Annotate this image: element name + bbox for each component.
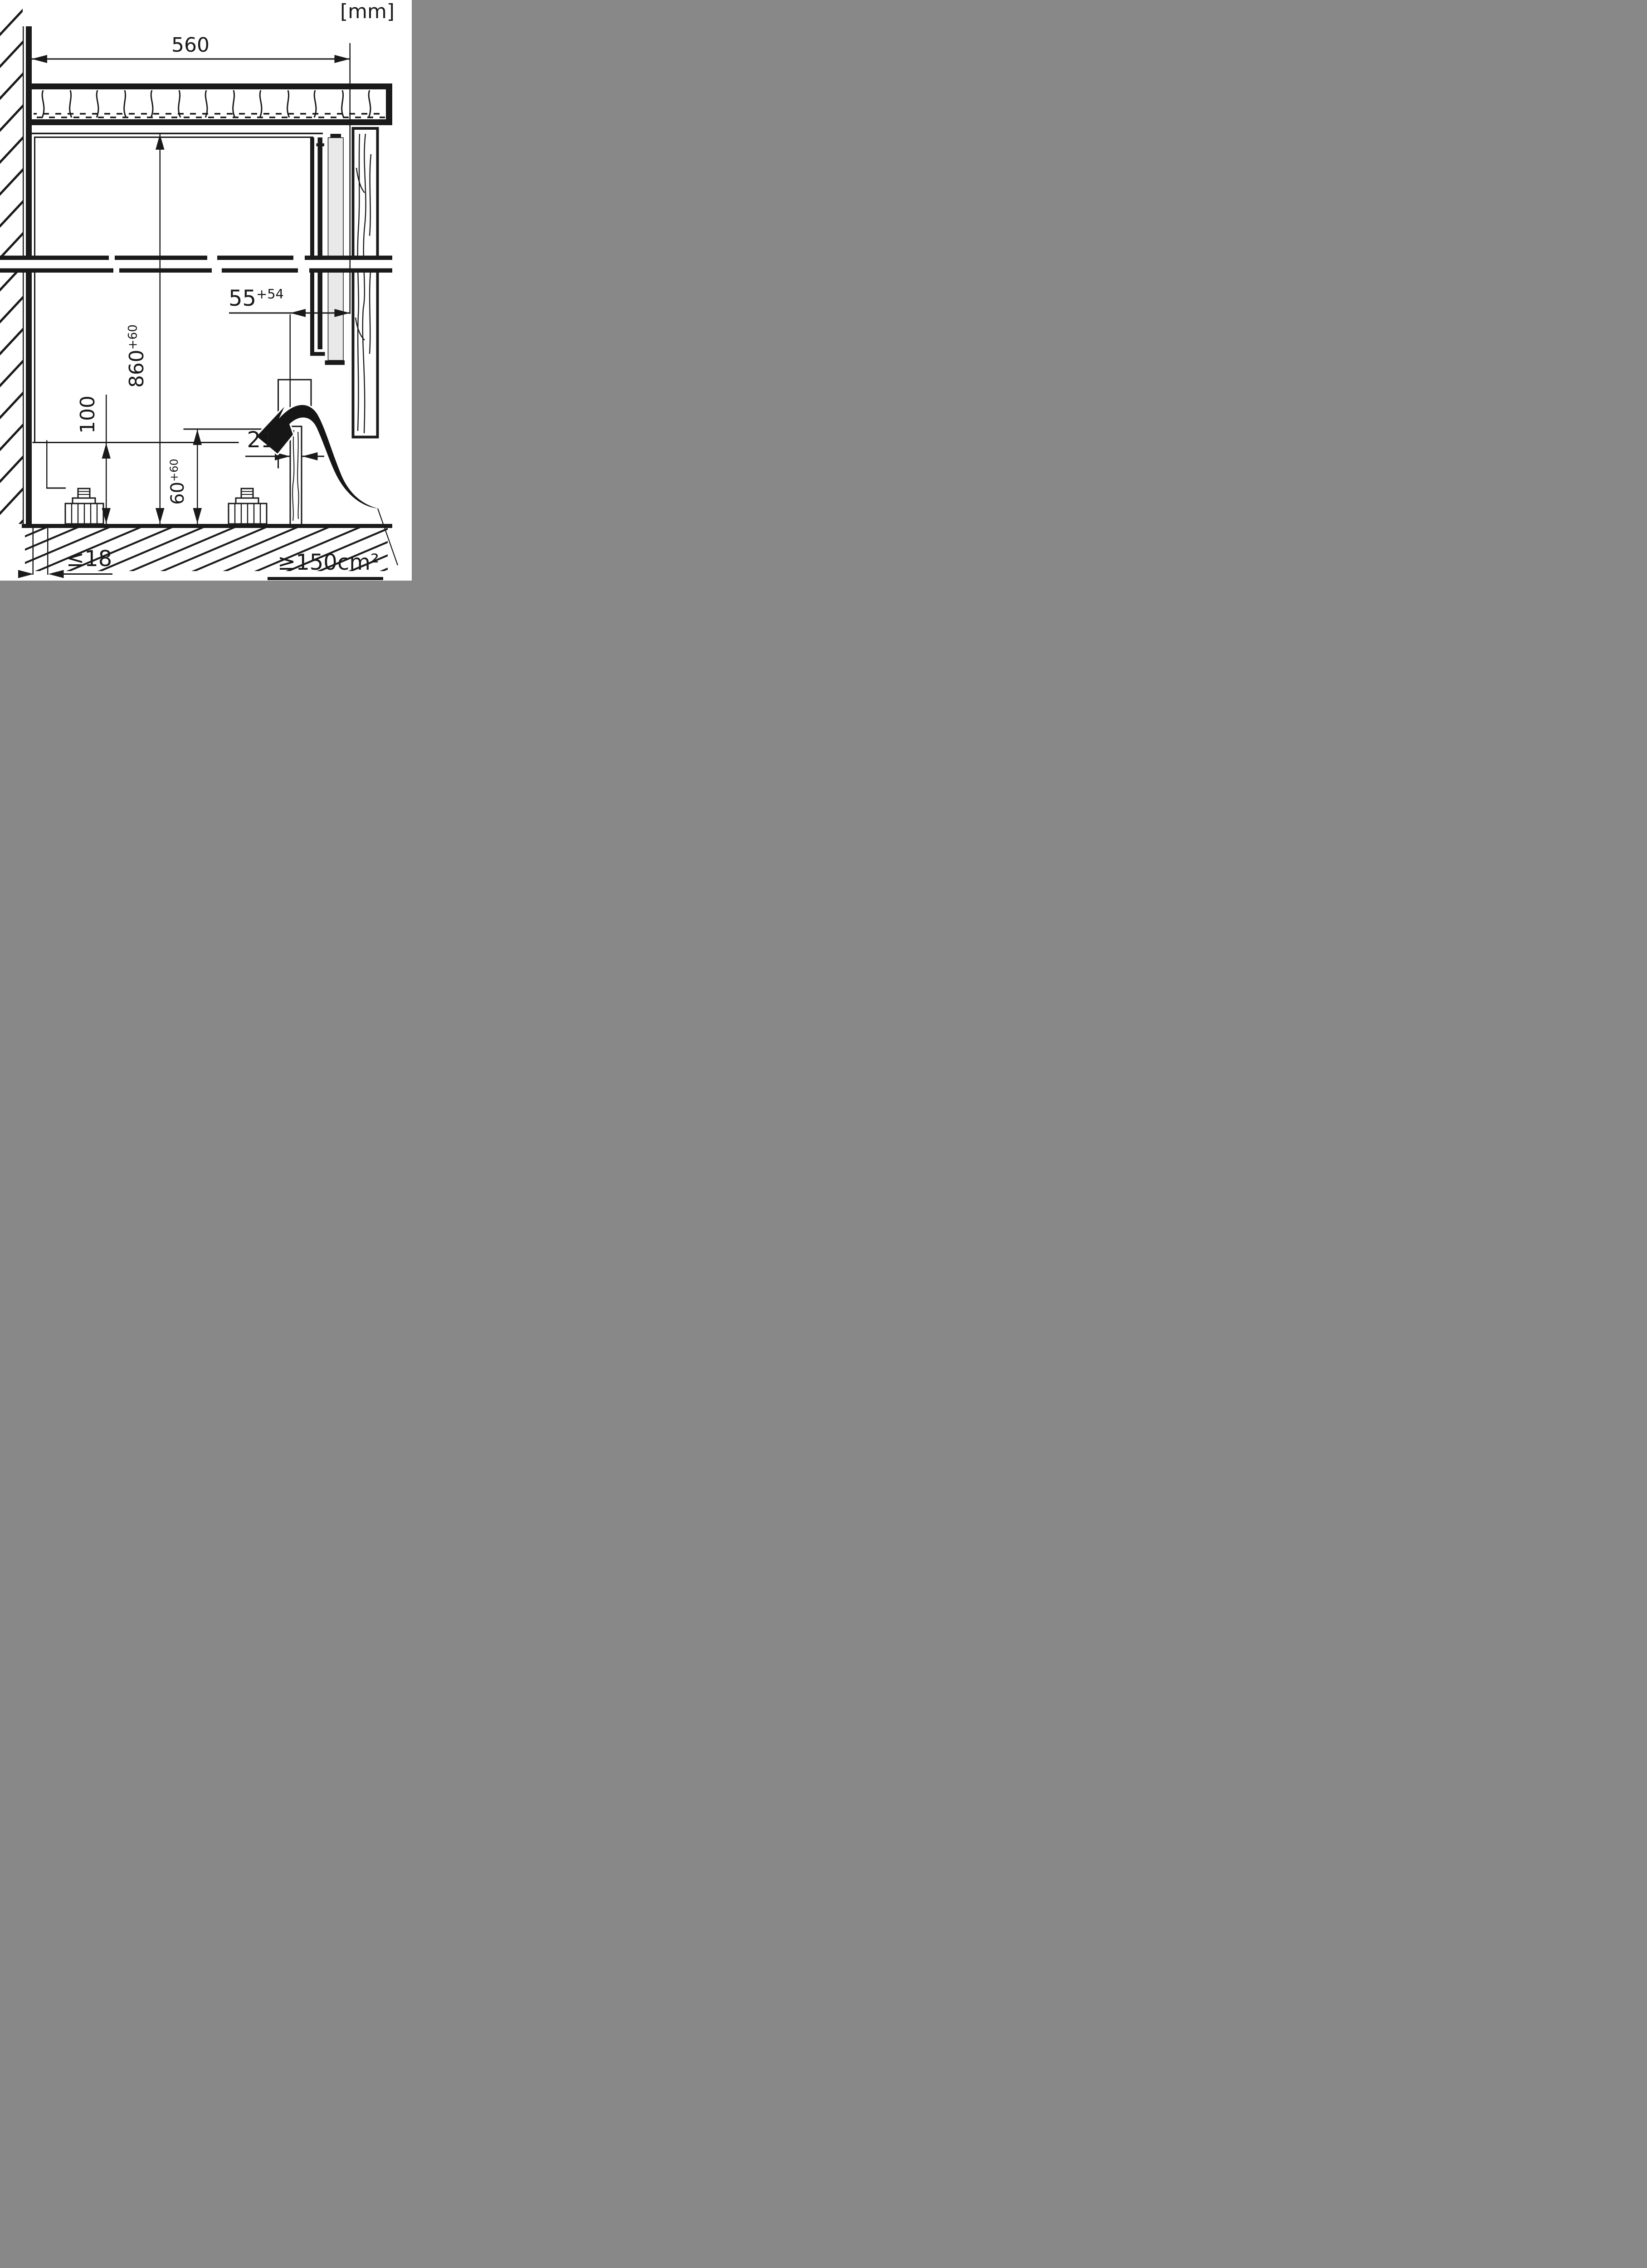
arrow-up-icon <box>193 430 202 445</box>
dim-plinth-recess-label: ≤18 <box>66 548 112 570</box>
arrow-right-icon <box>18 570 34 578</box>
niche-ceiling-line <box>32 133 323 135</box>
countertop <box>32 83 392 125</box>
door-gasket-strip <box>325 134 345 365</box>
dim-plinth-height-label: 60+60 <box>169 436 192 527</box>
adjustable-foot-right <box>229 489 267 524</box>
arrow-left-icon <box>290 309 306 317</box>
panel-face-reference-line <box>350 43 351 314</box>
unit-label: [mm] <box>326 2 395 22</box>
dim-niche-height-tolerance: +60 <box>126 324 140 350</box>
arrow-down-icon <box>193 508 202 523</box>
dim-niche-height-label: 860+60 <box>127 302 154 411</box>
diagram-graphics <box>0 0 412 581</box>
installation-diagram: [mm] 560 55+54 860+60 100 60+60 21 ≤18 ≥… <box>0 0 412 581</box>
dim-plinth-height-tolerance: +60 <box>168 459 180 482</box>
arrow-down-icon <box>156 508 165 523</box>
dim-floor-clearance-label: 100 <box>78 383 102 446</box>
appliance-door-edge <box>318 137 323 349</box>
dim-niche-width-label: 560 <box>154 35 227 55</box>
wall-panel <box>353 128 378 437</box>
arrow-up-icon <box>102 443 111 459</box>
appliance-side-wall <box>310 137 314 352</box>
dim-niche-height <box>156 134 165 524</box>
arrow-left-icon <box>49 570 64 578</box>
dim-front-gap-tolerance: +54 <box>256 286 284 302</box>
furniture-door <box>290 426 302 524</box>
dim-door-thickness <box>245 452 324 460</box>
worktop-end-grain <box>34 112 385 118</box>
arrow-right-icon <box>335 55 350 63</box>
arrow-left-icon <box>32 55 47 63</box>
adjustable-foot-left <box>65 489 103 524</box>
front-plane-extension-line <box>290 314 291 414</box>
plinth-recess <box>46 440 66 489</box>
dim-plinth-height <box>193 429 202 524</box>
furniture-door-grain <box>292 430 298 521</box>
dim-vent-area-label: ≥150cm² <box>278 552 379 573</box>
dim-door-thickness-label: 21 <box>245 429 277 451</box>
appliance-bottom-line <box>33 442 239 443</box>
arrow-left-icon <box>302 452 318 460</box>
dim-front-gap-label: 55+54 <box>229 288 284 309</box>
